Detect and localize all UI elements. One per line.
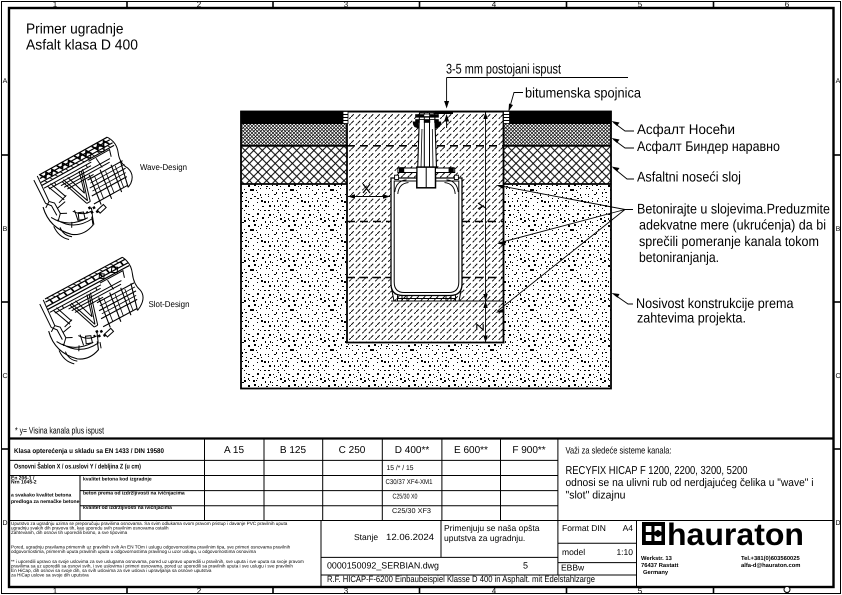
svg-text:4: 4 bbox=[492, 587, 497, 595]
svg-text:C25/30 XF3: C25/30 XF3 bbox=[392, 507, 431, 515]
svg-text:5: 5 bbox=[638, 0, 643, 9]
svg-text:A: A bbox=[3, 78, 8, 85]
svg-text:Nrn 1045-2: Nrn 1045-2 bbox=[11, 480, 37, 486]
svg-text:C: C bbox=[2, 373, 7, 380]
svg-text:Primer ugradnje: Primer ugradnje bbox=[26, 22, 124, 38]
svg-text:Slot-Design: Slot-Design bbox=[149, 299, 190, 309]
svg-text:Važi za sledeće sisteme kanala: Važi za sledeće sisteme kanala: bbox=[566, 446, 672, 457]
svg-text:C25/30 X0: C25/30 X0 bbox=[393, 493, 418, 501]
svg-text:3: 3 bbox=[344, 0, 349, 9]
svg-text:0000150092_SERBIAN.dwg: 0000150092_SERBIAN.dwg bbox=[327, 561, 439, 571]
svg-text:RECYFIX HICAP F 1200, 2200, 32: RECYFIX HICAP F 1200, 2200, 3200, 5200 bbox=[566, 465, 748, 477]
svg-text:kvalitet od izdržljivosti na i: kvalitet od izdržljivosti na ivičnjacima bbox=[83, 505, 172, 511]
svg-text:Betonirajte u slojevima.Preduz: Betonirajte u slojevima.Preduzmite bbox=[637, 201, 830, 217]
svg-text:Klasa opterećenja u skladu sa: Klasa opterećenja u skladu sa EN 1433 / … bbox=[14, 448, 164, 455]
svg-text:3-5 mm postojani ispust: 3-5 mm postojani ispust bbox=[446, 60, 561, 76]
svg-text:A4: A4 bbox=[623, 523, 634, 533]
svg-text:2: 2 bbox=[197, 0, 202, 9]
svg-text:bitumenska spojnica: bitumenska spojnica bbox=[525, 85, 641, 101]
svg-text:4: 4 bbox=[492, 0, 497, 9]
svg-text:Zahtevanih, dih osnovi tih upo: Zahtevanih, dih osnovi tih uporedili bis… bbox=[11, 530, 128, 535]
svg-text:Tel.+381(0)603560025: Tel.+381(0)603560025 bbox=[741, 555, 800, 562]
svg-text:adekvatne mere (ukrućenja) da: adekvatne mere (ukrućenja) da bi bbox=[639, 217, 826, 233]
svg-text:B: B bbox=[836, 226, 841, 233]
svg-text:5: 5 bbox=[523, 561, 528, 571]
svg-text:C: C bbox=[835, 373, 840, 380]
svg-text:76437 Rastatt: 76437 Rastatt bbox=[641, 562, 678, 569]
svg-text:12.06.2024: 12.06.2024 bbox=[386, 532, 434, 542]
svg-text:Osnovni Šablon X / os.uslovi Y: Osnovni Šablon X / os.uslovi Y / debljin… bbox=[14, 462, 141, 471]
svg-text:1: 1 bbox=[53, 0, 58, 9]
svg-text:A: A bbox=[836, 78, 841, 85]
svg-text:2: 2 bbox=[197, 587, 202, 595]
svg-text:zahtevima projekta.: zahtevima projekta. bbox=[637, 309, 746, 325]
svg-text:* y= Visina kanala plus ispust: * y= Visina kanala plus ispust bbox=[15, 426, 104, 436]
svg-text:A 15: A 15 bbox=[224, 445, 244, 456]
svg-text:Асфалт Носећи: Асфалт Носећи bbox=[637, 121, 735, 137]
svg-text:"slot" dizajnu: "slot" dizajnu bbox=[566, 490, 626, 502]
svg-text:odnosi se na ulivni rub od ner: odnosi se na ulivni rub od nerdjajućeg č… bbox=[566, 477, 814, 489]
svg-text:5: 5 bbox=[638, 587, 643, 595]
svg-text:odgovornostima, primernih uput: odgovornostima, primernih uputa pravilni… bbox=[11, 549, 256, 554]
svg-text:alfa-d@hauraton.com: alfa-d@hauraton.com bbox=[741, 562, 800, 569]
svg-text:za HiCap uslove sa svoje dih u: za HiCap uslove sa svoje dih uputstva bbox=[11, 573, 89, 578]
svg-text:betoniranjanja.: betoniranjanja. bbox=[639, 249, 719, 265]
svg-text:3: 3 bbox=[344, 587, 349, 595]
svg-text:Stanje: Stanje bbox=[354, 532, 378, 542]
svg-text:Wave-Design: Wave-Design bbox=[140, 162, 187, 172]
svg-text:EBBw: EBBw bbox=[561, 563, 585, 573]
svg-text:sprečili pomeranje kanala toko: sprečili pomeranje kanala tokom bbox=[639, 233, 819, 249]
svg-text:uputstva za ugradnju.: uputstva za ugradnju. bbox=[444, 533, 525, 543]
svg-text:Asfalt klasa D 400: Asfalt klasa D 400 bbox=[26, 37, 138, 53]
svg-text:15 /* / 15: 15 /* / 15 bbox=[387, 464, 414, 472]
svg-text:1:10: 1:10 bbox=[616, 547, 633, 557]
svg-text:6: 6 bbox=[785, 0, 790, 9]
svg-text:kvalitet betona kod izgradnje: kvalitet betona kod izgradnje bbox=[83, 477, 152, 483]
svg-text:Werkstr. 13: Werkstr. 13 bbox=[641, 555, 673, 562]
svg-text:R.F. HICAP-F-6200 Einbaubeispi: R.F. HICAP-F-6200 Einbaubeispiel Klasse … bbox=[327, 574, 595, 584]
svg-text:a svakako kvalitet betona: a svakako kvalitet betona bbox=[11, 493, 72, 499]
svg-text:D: D bbox=[2, 520, 7, 527]
svg-text:predloga za nemačke betone: predloga za nemačke betone bbox=[11, 499, 80, 505]
svg-text:F 900**: F 900** bbox=[512, 445, 545, 456]
svg-text:Primenjuju se naša opšta: Primenjuju se naša opšta bbox=[444, 523, 540, 533]
svg-text:D 400**: D 400** bbox=[395, 445, 430, 456]
svg-text:hauraton: hauraton bbox=[667, 517, 804, 552]
svg-text:Format DIN: Format DIN bbox=[562, 523, 606, 533]
svg-text:1: 1 bbox=[53, 587, 58, 595]
svg-text:Асфалт Биндер наравно: Асфалт Биндер наравно bbox=[637, 138, 780, 154]
svg-text:B: B bbox=[3, 226, 8, 233]
svg-text:C30/37 XF4-XM1: C30/37 XF4-XM1 bbox=[386, 478, 433, 486]
svg-text:beton prema od izdržljivosti n: beton prema od izdržljivosti na ivičnjac… bbox=[83, 491, 185, 497]
svg-text:Asfaltni noseći sloj: Asfaltni noseći sloj bbox=[637, 169, 741, 185]
svg-text:B 125: B 125 bbox=[280, 445, 307, 456]
svg-text:D: D bbox=[835, 520, 840, 527]
svg-text:C 250: C 250 bbox=[339, 445, 366, 456]
svg-text:E 600**: E 600** bbox=[454, 445, 488, 456]
svg-text:model: model bbox=[562, 547, 585, 557]
svg-text:Germany: Germany bbox=[643, 569, 669, 576]
